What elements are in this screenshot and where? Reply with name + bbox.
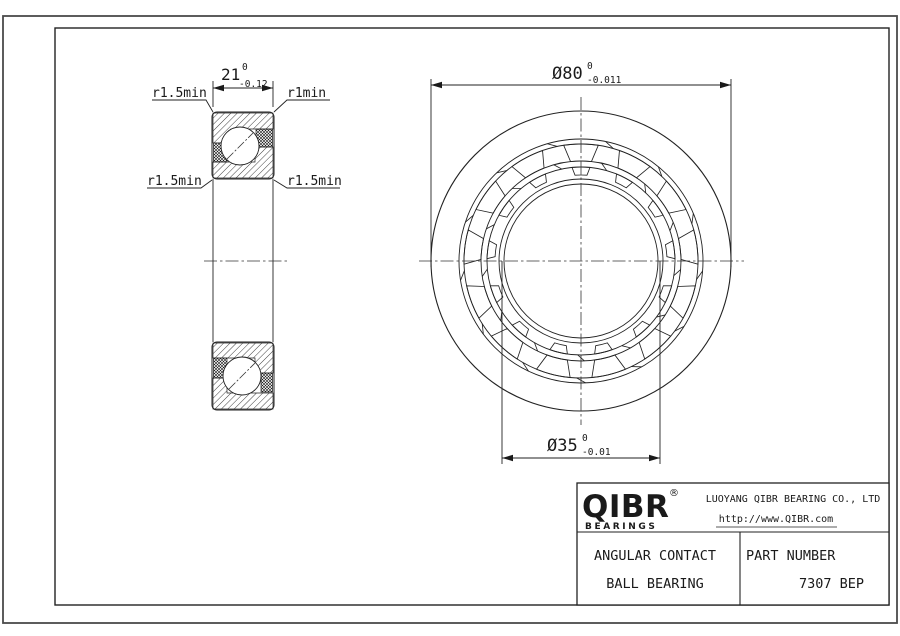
od-tol-lower: -0.011 [587,75,622,86]
width-value: 21 [221,65,240,84]
section-top-half [212,112,274,179]
product-type-line1: ANGULAR CONTACT [594,548,716,564]
website-link: http://www.QIBR.com [719,514,833,525]
bore-tol-upper: 0 [582,433,588,444]
engineering-drawing: 21 0 -0.12 r1.5min r1min r1.5min r1.5min [0,0,900,636]
width-tol-lower: -0.12 [239,79,268,90]
product-type-line2: BALL BEARING [606,576,704,592]
part-number-value: 7307 BEP [799,576,864,592]
drawing-page: 21 0 -0.12 r1.5min r1min r1.5min r1.5min [0,0,900,636]
od-value: Ø80 [552,64,583,84]
width-tol-upper: 0 [242,62,248,73]
bore-tol-lower: -0.01 [582,447,611,458]
cage-section-right [261,373,273,392]
brand-logo: QIBR [582,489,669,525]
radius-label-top-left: r1.5min [152,86,207,101]
part-number-label: PART NUMBER [746,548,836,564]
bore-value: Ø35 [547,436,578,456]
radius-label-bottom-left: r1.5min [147,174,202,189]
title-block: QIBR ® BEARINGS LUOYANG QIBR BEARING CO.… [577,483,889,605]
od-tol-upper: 0 [587,61,593,72]
brand-sub-label: BEARINGS [585,522,657,532]
radius-label-bottom-right: r1.5min [287,174,342,189]
company-name: LUOYANG QIBR BEARING CO., LTD [706,494,881,505]
radius-label-top-right: r1min [287,86,326,101]
registered-mark: ® [669,488,679,499]
section-bottom-half [212,342,274,410]
